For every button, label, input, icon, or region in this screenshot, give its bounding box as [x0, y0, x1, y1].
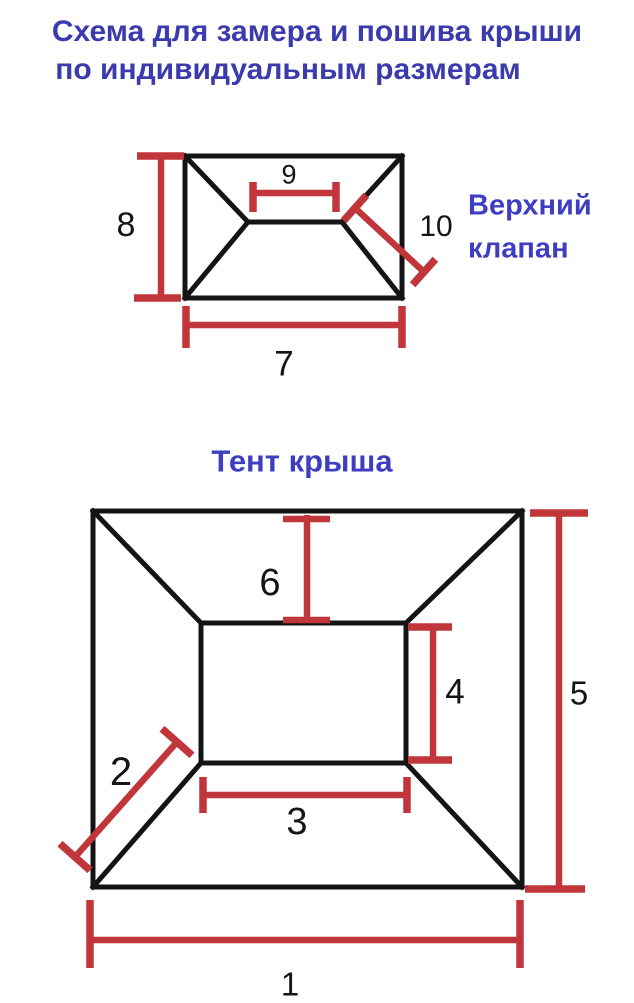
top-flap-label-line1: Верхний — [468, 192, 592, 221]
dim-8-lines — [134, 155, 184, 298]
dim-1-lines — [90, 900, 520, 968]
dim-9-label: 9 — [281, 162, 296, 189]
diagram-canvas — [0, 0, 634, 1003]
top-hip-upper-left — [185, 156, 248, 222]
corner-seam-top-right — [406, 511, 522, 623]
page-title-line1: Схема для замера и пошива крыши — [52, 17, 582, 47]
dim-6-lines — [283, 515, 330, 623]
page-title-line2: по индивидуальным размерам — [55, 55, 520, 85]
corner-seam-top-left — [93, 511, 201, 623]
top-hip-lower-right — [342, 222, 402, 298]
corner-seam-bottom-right — [406, 763, 522, 887]
dim-4-label: 4 — [445, 675, 464, 710]
tent-roof-title: Тент крыша — [211, 446, 392, 477]
inner-rect-outline — [201, 623, 406, 763]
roof-measurement-scheme: Схема для замера и пошива крыши по индив… — [0, 0, 634, 1003]
top-flap-label-line2: клапан — [468, 235, 569, 264]
dim-7-lines — [186, 306, 402, 348]
dim-3-label: 3 — [286, 803, 307, 841]
dim-1-label: 1 — [281, 968, 299, 1001]
dim-2-label: 2 — [110, 752, 132, 792]
dim-10-label: 10 — [419, 212, 452, 242]
dim-5-label: 5 — [570, 677, 588, 710]
dim-7-label: 7 — [274, 347, 293, 382]
dim-6-label: 6 — [259, 564, 280, 602]
dim-8-label: 8 — [117, 208, 136, 242]
top-hip-lower-left — [185, 222, 248, 298]
